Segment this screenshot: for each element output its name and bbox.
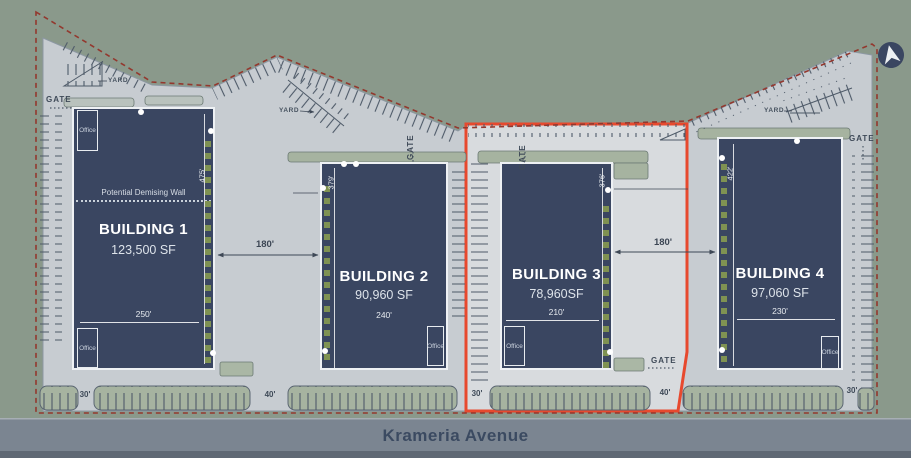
yard-label-left: YARD [108, 77, 128, 84]
north-arrow-icon [876, 40, 907, 71]
gate-label-bottom: GATE [651, 356, 677, 365]
drive-gap-dim: 40' [265, 390, 276, 399]
bay-dim-3-4: 180' [654, 237, 672, 248]
site-overlay-drawing [0, 0, 911, 458]
yard-label-right: YARD [764, 107, 784, 114]
site-plan: Office Office Potential Demising Wall 47… [0, 0, 911, 458]
bay-dim-1-2: 180' [256, 239, 274, 250]
drive-gap-dim: 30' [472, 389, 483, 398]
gate-label-parcel-3: GATE [518, 144, 527, 170]
yard-label-middle: YARD [279, 107, 299, 114]
street-name: Krameria Avenue [0, 426, 911, 446]
gate-label-building-2: GATE [406, 134, 415, 160]
bay-dimension-lines [98, 81, 792, 255]
drive-gap-dim: 40' [660, 388, 671, 397]
drive-gap-dim: 30' [80, 390, 91, 399]
roof-dots [138, 109, 800, 356]
gate-label-left: GATE [46, 95, 72, 104]
drive-gap-dim: 30' [847, 386, 858, 395]
gate-label-top-right: GATE [849, 134, 875, 143]
